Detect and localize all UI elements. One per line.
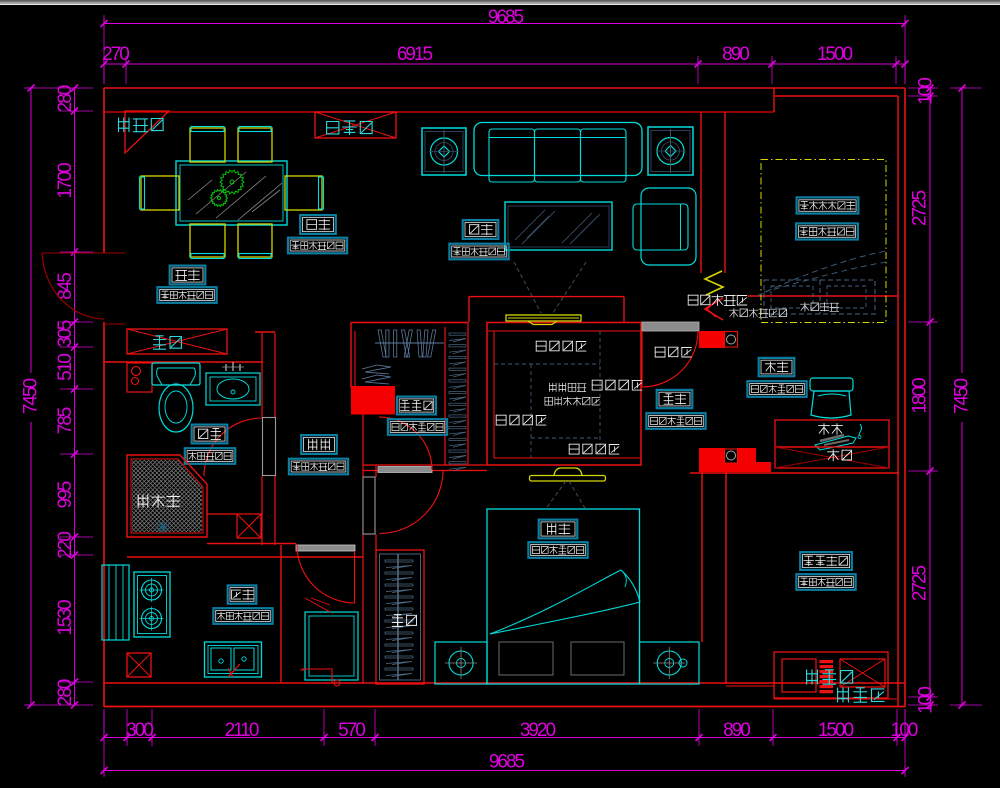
svg-text:1700: 1700	[55, 163, 76, 199]
svg-text:570: 570	[338, 720, 365, 741]
svg-text:280: 280	[55, 679, 76, 706]
svg-text:305: 305	[55, 320, 76, 347]
svg-text:9685: 9685	[489, 752, 525, 773]
svg-text:270: 270	[102, 44, 129, 65]
svg-text:100: 100	[916, 78, 937, 105]
svg-text:1800: 1800	[910, 378, 931, 414]
svg-text:1500: 1500	[818, 720, 854, 741]
svg-text:3920: 3920	[520, 720, 556, 741]
svg-text:1530: 1530	[55, 600, 76, 636]
svg-text:7450: 7450	[21, 378, 42, 414]
svg-text:890: 890	[722, 44, 749, 65]
svg-text:2725: 2725	[910, 190, 931, 226]
svg-text:100: 100	[891, 720, 918, 741]
svg-text:510: 510	[55, 354, 76, 381]
svg-text:280: 280	[55, 85, 76, 112]
svg-text:890: 890	[723, 720, 750, 741]
svg-text:785: 785	[55, 407, 76, 434]
svg-text:995: 995	[55, 481, 76, 508]
svg-text:300: 300	[126, 720, 153, 741]
svg-text:6915: 6915	[397, 44, 433, 65]
svg-text:100: 100	[916, 687, 937, 714]
svg-text:1500: 1500	[817, 44, 853, 65]
svg-text:9685: 9685	[488, 7, 524, 28]
svg-text:7450: 7450	[952, 378, 973, 414]
svg-text:2110: 2110	[225, 720, 259, 741]
svg-text:220: 220	[55, 532, 76, 559]
svg-text:2725: 2725	[910, 565, 931, 601]
